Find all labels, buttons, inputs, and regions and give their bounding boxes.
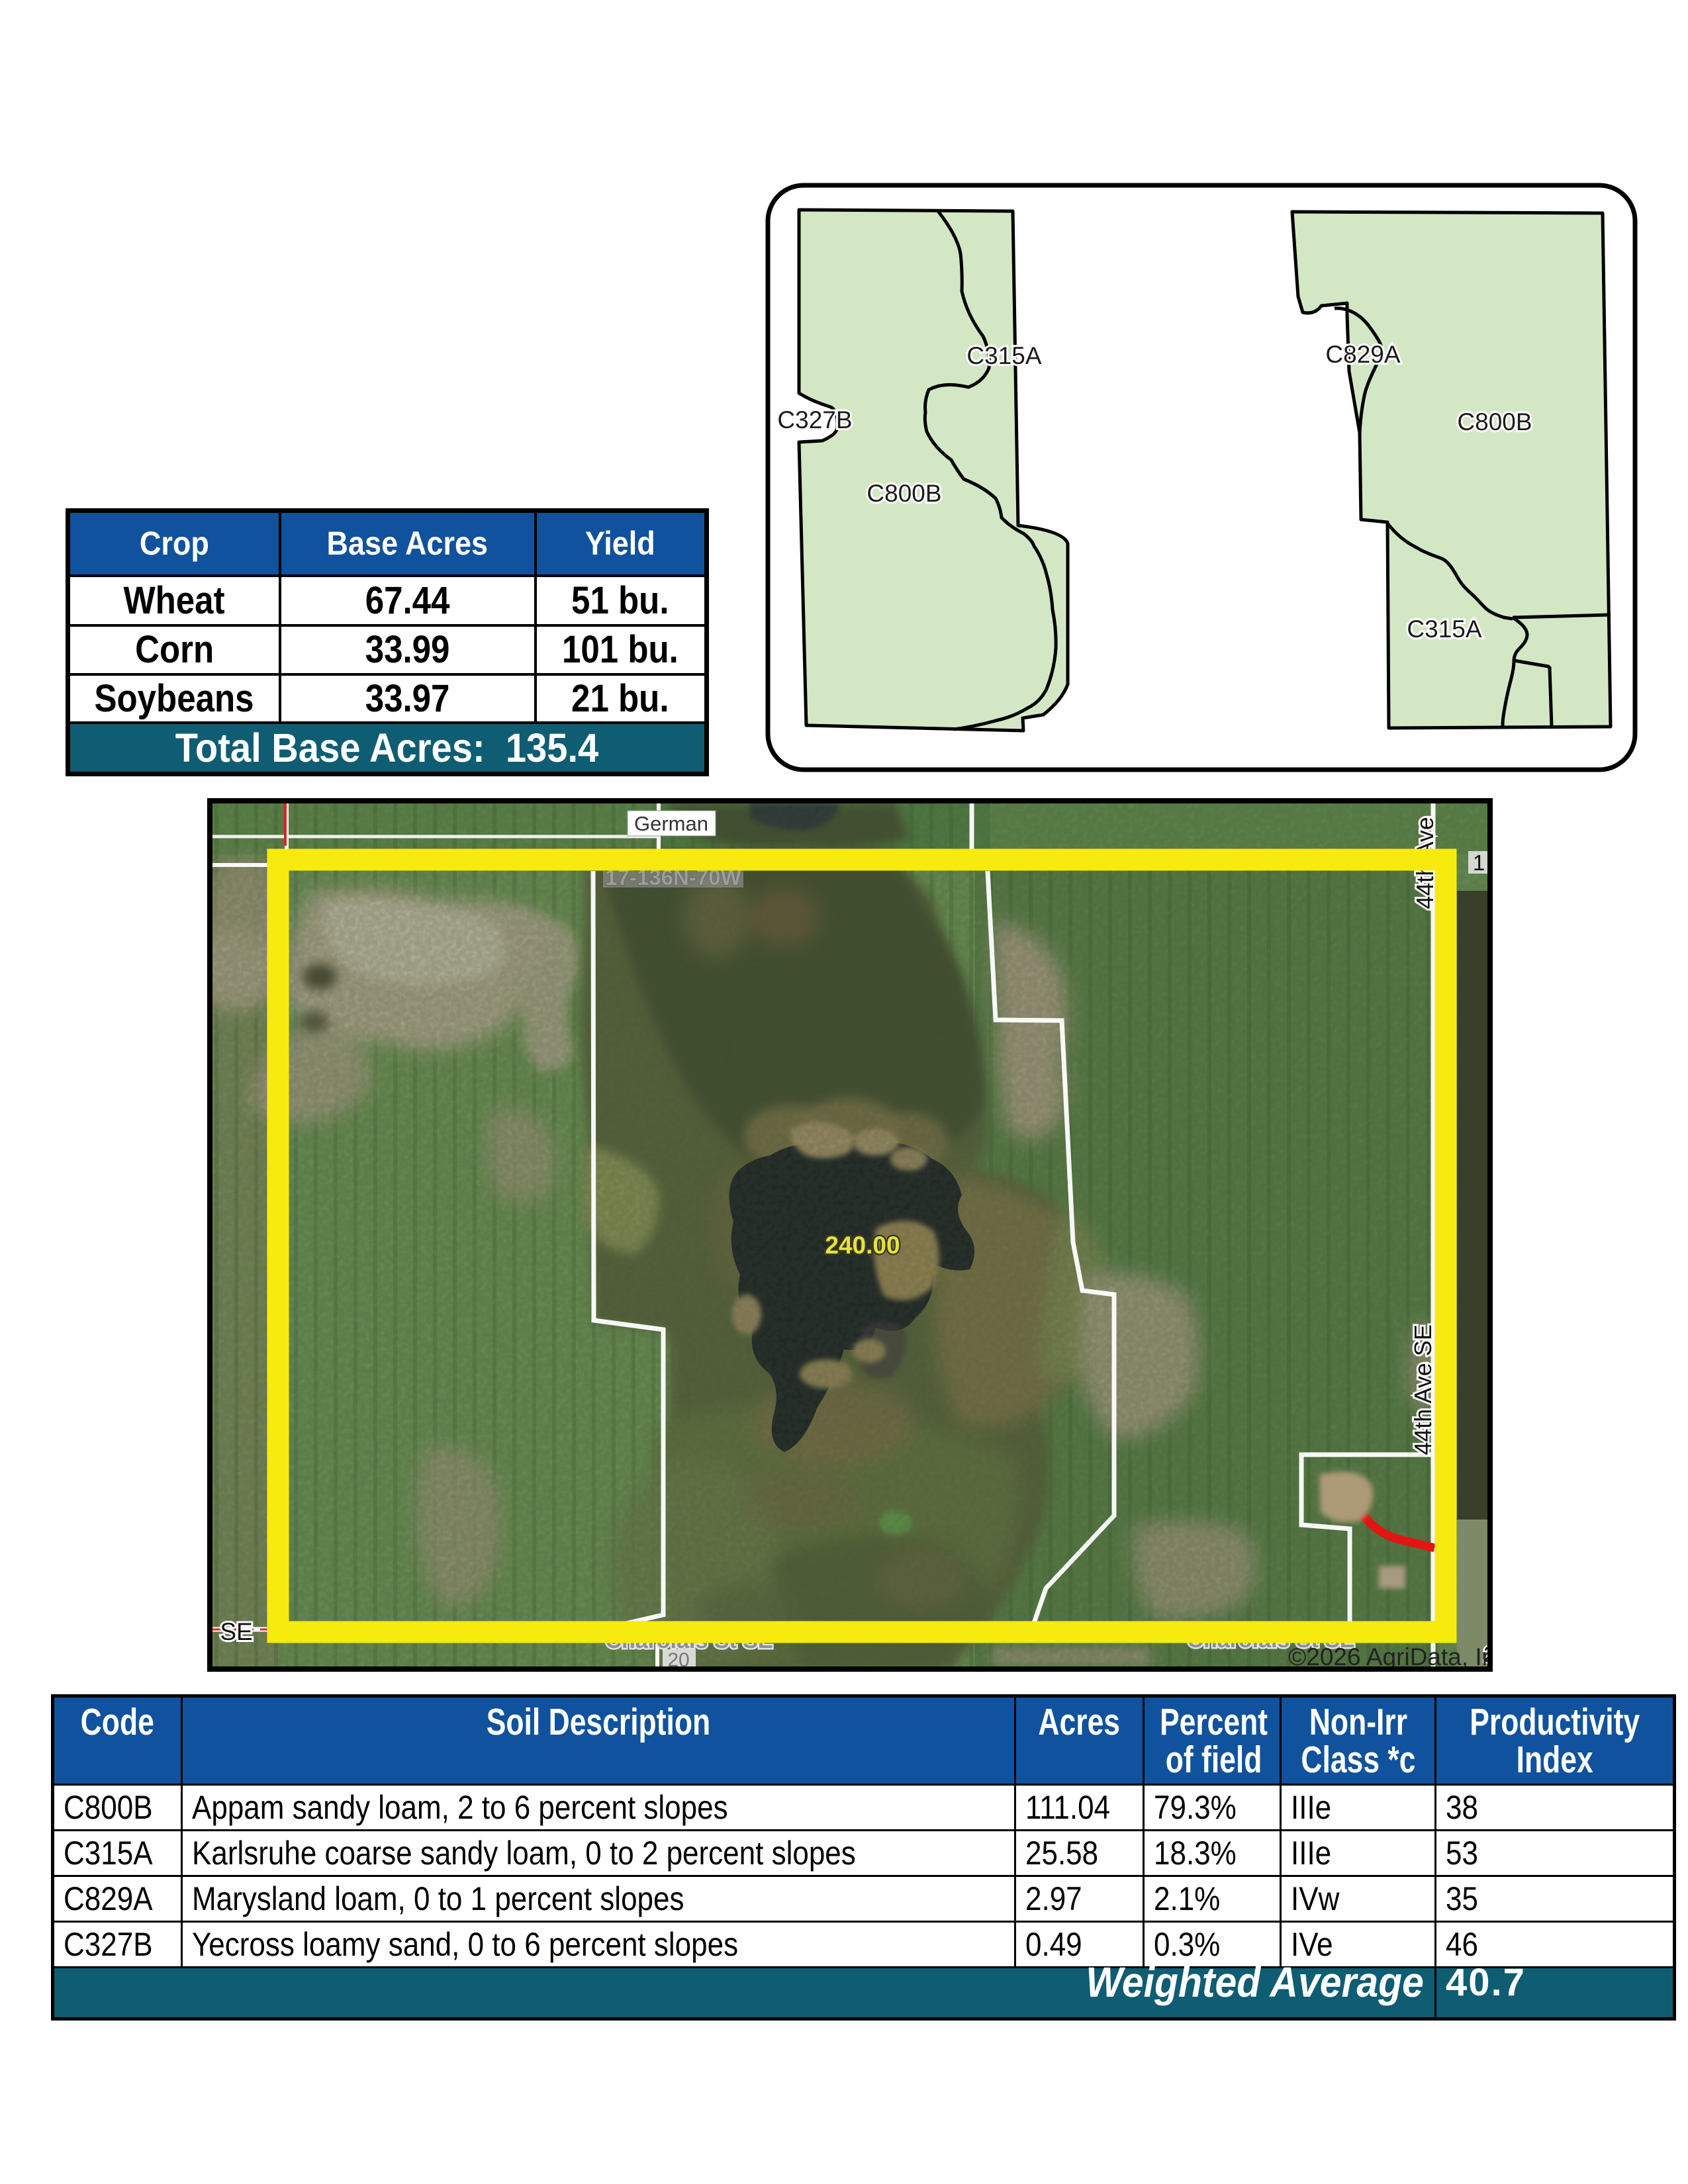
svg-text:C800B: C800B — [1457, 408, 1532, 435]
svg-text:C327B: C327B — [777, 406, 852, 433]
svg-text:240.00: 240.00 — [825, 1232, 900, 1259]
svg-text:©2026 AgriData, In: ©2026 AgriData, In — [1288, 1643, 1493, 1670]
svg-text:SE: SE — [220, 1618, 252, 1645]
svg-text:1: 1 — [1473, 850, 1485, 875]
svg-text:44th Ave SE: 44th Ave SE — [1409, 1324, 1436, 1455]
svg-text:German: German — [634, 812, 708, 835]
svg-text:C315A: C315A — [966, 342, 1041, 369]
svg-text:C829A: C829A — [1325, 341, 1400, 368]
svg-text:C315A: C315A — [1407, 615, 1481, 643]
svg-text:C800B: C800B — [867, 480, 941, 507]
